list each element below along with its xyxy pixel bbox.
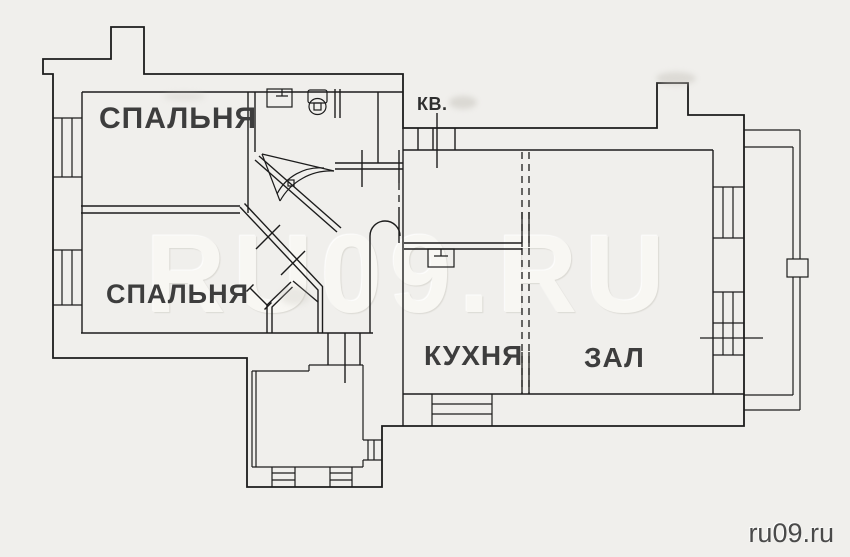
- fixtures: [262, 89, 454, 267]
- scan-smudge: [280, 287, 310, 305]
- apartment-number-label: КВ.: [417, 94, 448, 115]
- right-balcony-rails: [744, 130, 808, 410]
- floor-plan-image: RU09.RU: [0, 0, 850, 557]
- kitchen-sink-icon: [428, 249, 454, 267]
- site-credit-text: ru09.ru: [748, 518, 834, 549]
- corner-shower-door-arc-icon: [262, 154, 334, 201]
- scan-smudge: [163, 92, 205, 101]
- window-symbols: [53, 118, 763, 426]
- toilet-icon: [308, 90, 327, 115]
- erased-number-smudge: [449, 96, 477, 109]
- room-label-kitchen: КУХНЯ: [424, 342, 523, 370]
- room-label-bedroom-1: СПАЛЬНЯ: [99, 104, 257, 134]
- bottom-balcony: [252, 365, 382, 487]
- room-label-bedroom-2: СПАЛЬНЯ: [106, 281, 249, 308]
- scan-smudge: [656, 72, 696, 85]
- interior-walls: [81, 89, 744, 426]
- room-label-living-room: ЗАЛ: [584, 344, 645, 372]
- outer-walls: [43, 27, 744, 487]
